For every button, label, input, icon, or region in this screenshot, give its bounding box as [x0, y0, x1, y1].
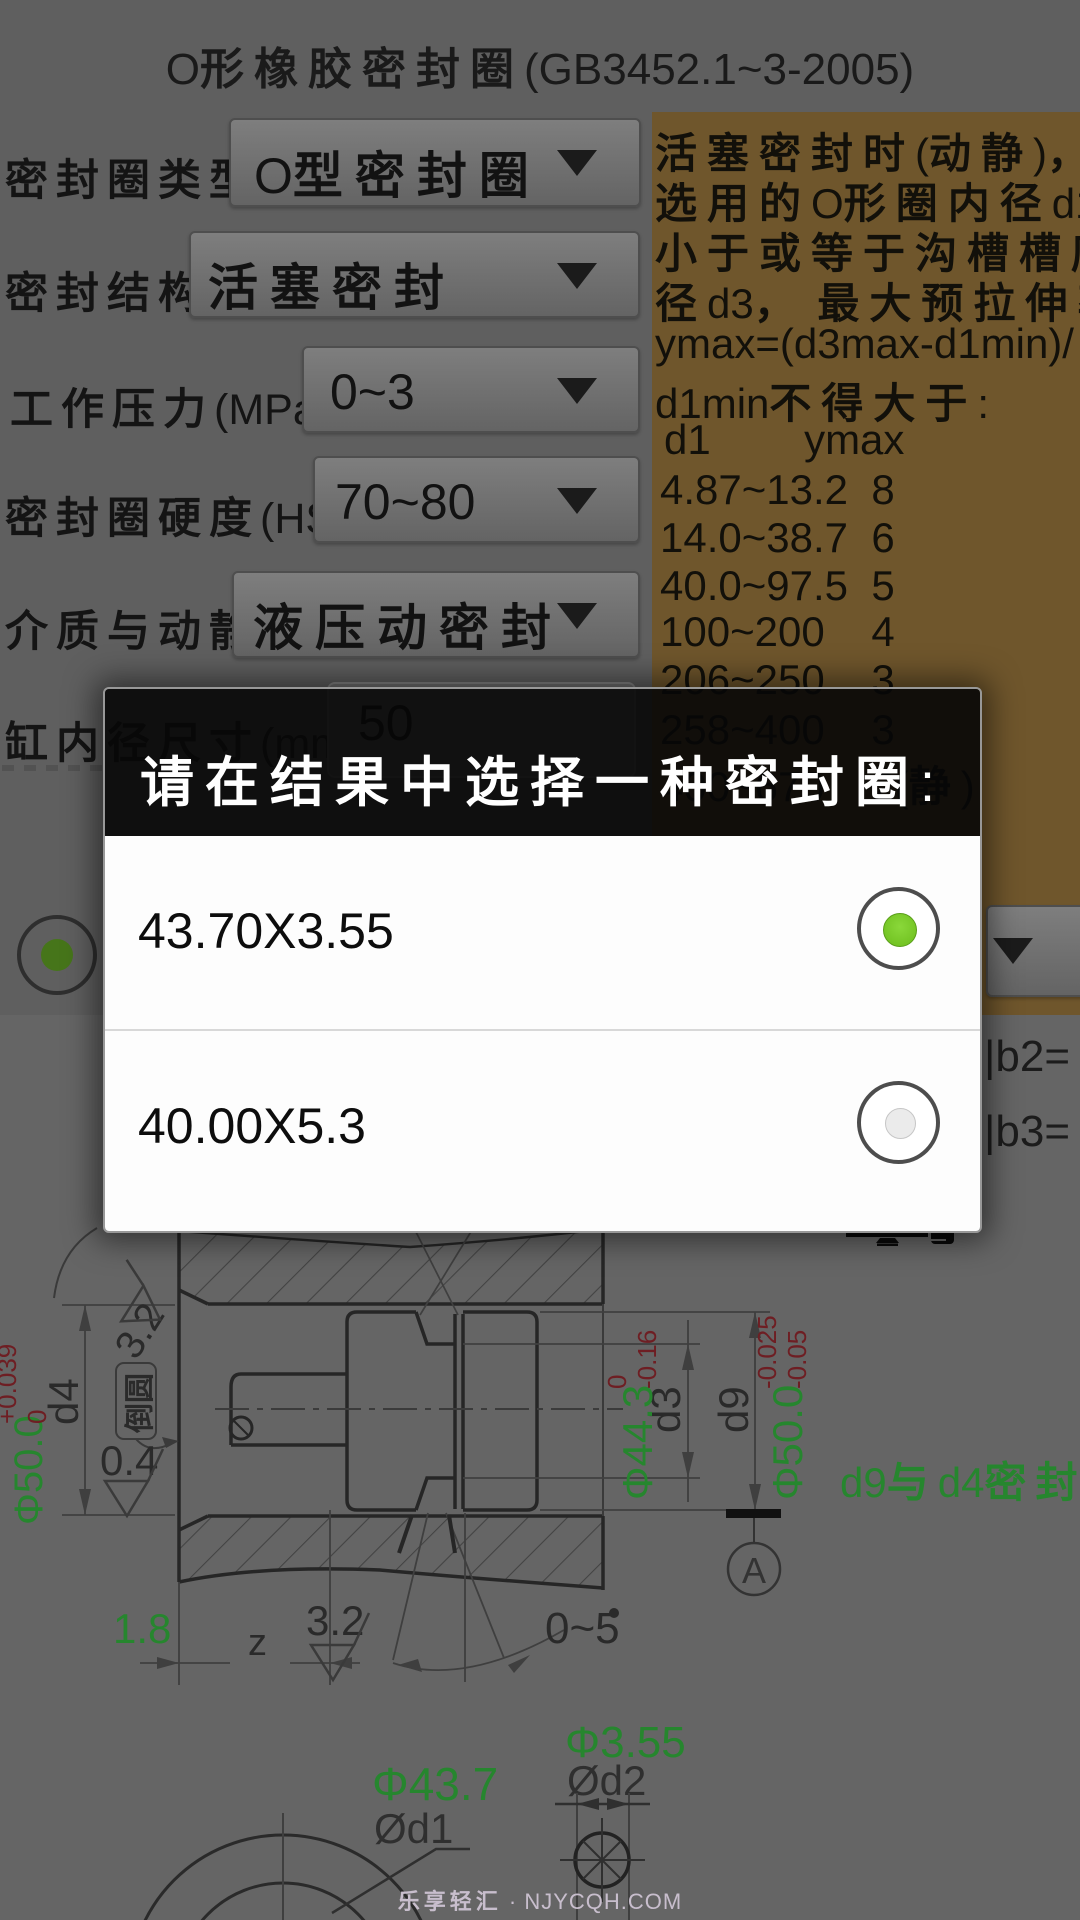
svg-text:Φ50.0: Φ50.0: [7, 1415, 51, 1525]
svg-text:3.2: 3.2: [306, 1597, 364, 1644]
svg-text:Φ50.0: Φ50.0: [764, 1385, 811, 1500]
svg-text:-0.025: -0.025: [752, 1315, 782, 1389]
svg-text:0: 0: [602, 1375, 632, 1389]
svg-text:d4: d4: [40, 1378, 87, 1425]
svg-text:d9: d9: [710, 1386, 757, 1433]
svg-text:z: z: [248, 1622, 267, 1664]
svg-text:Φ43.7: Φ43.7: [372, 1758, 498, 1810]
svg-text:-0.05: -0.05: [782, 1330, 812, 1389]
svg-text:-0.16: -0.16: [632, 1330, 662, 1389]
svg-text:倒圆: 倒圆: [124, 1373, 157, 1434]
svg-text:Φ44.3: Φ44.3: [614, 1385, 661, 1500]
svg-text:+0.039: +0.039: [0, 1344, 22, 1424]
svg-text:Ød1: Ød1: [374, 1805, 453, 1852]
svg-text:A: A: [742, 1550, 766, 1591]
svg-text:Ød2: Ød2: [567, 1757, 646, 1804]
svg-text:0~5: 0~5: [545, 1604, 620, 1653]
svg-text:d9与d4密封直径: d9与d4密封直径: [840, 1459, 1080, 1506]
svg-text:1.8: 1.8: [113, 1605, 171, 1652]
